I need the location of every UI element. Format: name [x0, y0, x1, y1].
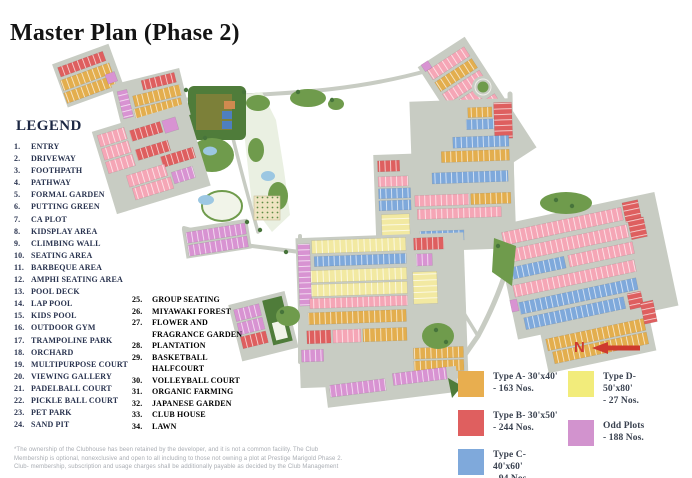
plot-type-label: Type C- 40'x60'- 94 Nos [493, 449, 558, 478]
legend-item-label: PLANTATION [152, 340, 258, 352]
plot-type-name: Type B- 30'x50' [493, 410, 558, 422]
cluster-pink-strip [182, 219, 252, 259]
legend-item-number: 11. [14, 262, 31, 274]
plot-type-swatch-type-b [458, 410, 484, 436]
legend-item: 1.ENTRY [14, 141, 128, 153]
legend-item: 16.OUTDOOR GYM [14, 322, 128, 334]
plot-type-entry-odd-plots: Odd Plots- 188 Nos. [568, 420, 668, 446]
plot-type-entry-type-c: Type C- 40'x60'- 94 Nos [458, 449, 558, 478]
legend-item: 21.PADELBALL COURT [14, 383, 128, 395]
legend-item-label: VIEWING GALLERY [31, 371, 112, 383]
legend-item: 23.PET PARK [14, 407, 128, 419]
legend-item-label: FORMAL GARDEN [31, 189, 105, 201]
legend-item: 19.MULTIPURPOSE COURT [14, 359, 128, 371]
legend-item-label: ORCHARD [31, 347, 73, 359]
legend-item-number: 28. [132, 340, 152, 352]
legend-item: 34.LAWN [132, 421, 258, 433]
legend-item-number: 32. [132, 398, 152, 410]
legend-item-label: BARBEQUE AREA [31, 262, 102, 274]
legend-item: 7.CA PLOT [14, 214, 128, 226]
legend-item-number: 18. [14, 347, 31, 359]
legend-item-label: ORGANIC FARMING [152, 386, 258, 398]
disclaimer-text: *The ownership of the Clubhouse has been… [14, 446, 348, 472]
legend-item: 25.GROUP SEATING [132, 294, 258, 306]
legend-item-label: CLIMBING WALL [31, 238, 101, 250]
legend-item: 14.LAP POOL [14, 298, 128, 310]
legend-item-number: 30. [132, 375, 152, 387]
plot-type-name: Type D- 50'x80' [603, 371, 668, 395]
north-label: N [574, 339, 585, 356]
legend-item: 32.JAPANESE GARDEN [132, 398, 258, 410]
green-pocket-2 [276, 306, 300, 326]
legend-item-label: FLOWER AND FRAGRANCE GARDEN [152, 317, 258, 340]
legend-item-label: FOOTHPATH [31, 165, 82, 177]
legend-item-number: 15. [14, 310, 31, 322]
legend-item: 15.KIDS POOL [14, 310, 128, 322]
plot-type-label: Type A- 30'x40'- 163 Nos. [493, 371, 558, 395]
legend-item: 8.KIDSPLAY AREA [14, 226, 128, 238]
legend-item: 10.SEATING AREA [14, 250, 128, 262]
legend-item-label: PICKLE BALL COURT [31, 395, 118, 407]
wing-green-knoll [540, 192, 592, 214]
legend-item-label: PUTTING GREEN [31, 201, 100, 213]
kids-pool [198, 195, 214, 205]
page-title: Master Plan (Phase 2) [10, 20, 240, 47]
legend-item-number: 21. [14, 383, 31, 395]
north-arrow-icon [590, 341, 642, 355]
legend-item-label: OUTDOOR GYM [31, 322, 96, 334]
plot-type-swatch-odd-plots [568, 420, 594, 446]
sports-court-orange [224, 101, 235, 109]
legend-item-label: ENTRY [31, 141, 59, 153]
legend-item-number: 34. [132, 421, 152, 433]
legend-item: 12.AMPHI SEATING AREA [14, 274, 128, 286]
plot-legend-column-2: Type D- 50'x80'- 27 Nos.Odd Plots- 188 N… [568, 371, 668, 478]
plot-type-count: - 27 Nos. [603, 395, 668, 407]
legend-item: 28.PLANTATION [132, 340, 258, 352]
legend-item-number: 22. [14, 395, 31, 407]
legend-item-number: 10. [14, 250, 31, 262]
legend-item-number: 5. [14, 189, 31, 201]
legend-item: 17.TRAMPOLINE PARK [14, 335, 128, 347]
legend-item-number: 3. [14, 165, 31, 177]
legend-item: 4.PATHWAY [14, 177, 128, 189]
legend-item: 11.BARBEQUE AREA [14, 262, 128, 274]
legend-item-label: SEATING AREA [31, 250, 92, 262]
legend-item-label: LAWN [152, 421, 258, 433]
legend-column-2: 25.GROUP SEATING26.MIYAWAKI FOREST27.FLO… [132, 294, 258, 432]
north-indicator: N [574, 339, 642, 356]
plot-type-count: - 94 Nos [493, 473, 558, 478]
legend-item-number: 9. [14, 238, 31, 250]
sports-court-blue-2 [222, 121, 232, 129]
legend-item-number: 6. [14, 201, 31, 213]
legend-item-label: MIYAWAKI FOREST [152, 306, 258, 318]
plot-type-label: Type D- 50'x80'- 27 Nos. [603, 371, 668, 407]
legend-item: 20.VIEWING GALLERY [14, 371, 128, 383]
legend-item-number: 16. [14, 322, 31, 334]
legend-item-label: PATHWAY [31, 177, 71, 189]
japanese-garden [254, 196, 280, 220]
legend-item: 6.PUTTING GREEN [14, 201, 128, 213]
legend-item-label: JAPANESE GARDEN [152, 398, 258, 410]
legend-item-number: 19. [14, 359, 31, 371]
wing-edge-green [492, 238, 516, 286]
legend-item-label: POOL DECK [31, 286, 80, 298]
plot-type-name: Odd Plots [603, 420, 644, 432]
legend-item-label: DRIVEWAY [31, 153, 76, 165]
plot-type-legend: Type A- 30'x40'- 163 Nos.Type B- 30'x50'… [458, 371, 668, 478]
legend-item: 31.ORGANIC FARMING [132, 386, 258, 398]
plot-type-name: Type A- 30'x40' [493, 371, 558, 383]
legend-item: 27.FLOWER AND FRAGRANCE GARDEN [132, 317, 258, 340]
legend-panel: LEGEND 1.ENTRY2.DRIVEWAY3.FOOTHPATH4.PAT… [14, 118, 128, 431]
plot-type-swatch-type-c [458, 449, 484, 475]
plot-type-entry-type-d: Type D- 50'x80'- 27 Nos. [568, 371, 668, 407]
legend-item-label: SAND PIT [31, 419, 69, 431]
sports-court-blue-1 [222, 111, 232, 119]
plot-type-name: Type C- 40'x60' [493, 449, 558, 473]
legend-item: 5.FORMAL GARDEN [14, 189, 128, 201]
legend-item-label: AMPHI SEATING AREA [31, 274, 123, 286]
legend-item-label: CA PLOT [31, 214, 67, 226]
legend-item-number: 25. [132, 294, 152, 306]
legend-item-number: 13. [14, 286, 31, 298]
plot-type-label: Type B- 30'x50'- 244 Nos. [493, 410, 558, 434]
legend-item: 30.VOLLEYBALL COURT [132, 375, 258, 387]
legend-item: 29.BASKETBALL HALFCOURT [132, 352, 258, 375]
legend-item-label: PADELBALL COURT [31, 383, 112, 395]
green-pocket-1 [422, 323, 454, 349]
legend-item: 24.SAND PIT [14, 419, 128, 431]
legend-item-label: CLUB HOUSE [152, 409, 258, 421]
legend-item-label: GROUP SEATING [152, 294, 258, 306]
pool [203, 147, 217, 156]
plot-type-swatch-type-a [458, 371, 484, 397]
legend-item: 9.CLIMBING WALL [14, 238, 128, 250]
plot-type-entry-type-b: Type B- 30'x50'- 244 Nos. [458, 410, 558, 436]
legend-item: 18.ORCHARD [14, 347, 128, 359]
legend-item: 22.PICKLE BALL COURT [14, 395, 128, 407]
legend-item-number: 12. [14, 274, 31, 286]
legend-item-label: MULTIPURPOSE COURT [31, 359, 128, 371]
legend-item-number: 1. [14, 141, 31, 153]
legend-item-number: 33. [132, 409, 152, 421]
legend-item-number: 4. [14, 177, 31, 189]
legend-item-label: VOLLEYBALL COURT [152, 375, 258, 387]
legend-item-number: 7. [14, 214, 31, 226]
plot-legend-column-1: Type A- 30'x40'- 163 Nos.Type B- 30'x50'… [458, 371, 558, 478]
legend-item-label: BASKETBALL HALFCOURT [152, 352, 258, 375]
legend-item: 26.MIYAWAKI FOREST [132, 306, 258, 318]
legend-item-number: 24. [14, 419, 31, 431]
legend-item: 3.FOOTHPATH [14, 165, 128, 177]
legend-item-number: 17. [14, 335, 31, 347]
legend-item-label: LAP POOL [31, 298, 72, 310]
legend-heading: LEGEND [16, 118, 128, 135]
legend-item-label: KIDS POOL [31, 310, 77, 322]
plot-type-count: - 188 Nos. [603, 432, 644, 444]
legend-item: 2.DRIVEWAY [14, 153, 128, 165]
legend-item-number: 31. [132, 386, 152, 398]
legend-column-1: 1.ENTRY2.DRIVEWAY3.FOOTHPATH4.PATHWAY5.F… [14, 141, 128, 431]
legend-item-label: PET PARK [31, 407, 72, 419]
legend-item-number: 14. [14, 298, 31, 310]
legend-item-number: 23. [14, 407, 31, 419]
master-plan-page: Master Plan (Phase 2) LEGEND 1.ENTRY2.DR… [0, 0, 692, 478]
legend-item: 33.CLUB HOUSE [132, 409, 258, 421]
roundabout [472, 76, 494, 98]
legend-item-number: 26. [132, 306, 152, 318]
legend-item-number: 27. [132, 317, 152, 340]
legend-item-number: 29. [132, 352, 152, 375]
cluster-top-left [52, 44, 124, 108]
legend-item-label: TRAMPOLINE PARK [31, 335, 112, 347]
legend-item-number: 2. [14, 153, 31, 165]
legend-item-number: 8. [14, 226, 31, 238]
legend-item: 13.POOL DECK [14, 286, 128, 298]
legend-item-label: KIDSPLAY AREA [31, 226, 98, 238]
plot-type-label: Odd Plots- 188 Nos. [603, 420, 644, 444]
plot-type-swatch-type-d [568, 371, 594, 397]
plot-type-entry-type-a: Type A- 30'x40'- 163 Nos. [458, 371, 558, 397]
plot-type-count: - 244 Nos. [493, 422, 558, 434]
legend-item-number: 20. [14, 371, 31, 383]
plot-type-count: - 163 Nos. [493, 383, 558, 395]
